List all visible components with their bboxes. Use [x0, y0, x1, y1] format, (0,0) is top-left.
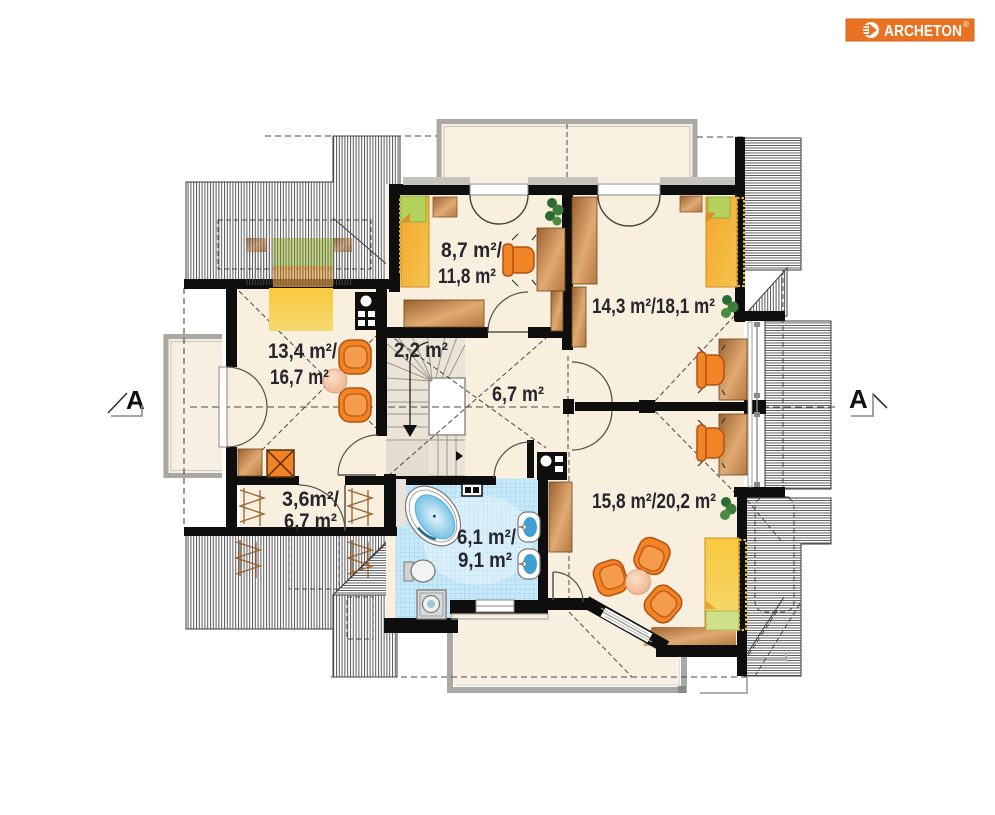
svg-text:9,1 m²: 9,1 m² [458, 549, 512, 572]
svg-text:ARCHETON: ARCHETON [884, 23, 962, 40]
svg-text:6,7 m²: 6,7 m² [284, 510, 337, 533]
svg-text:14,3 m²/18,1 m²: 14,3 m²/18,1 m² [592, 295, 715, 318]
svg-text:®: ® [963, 20, 969, 29]
svg-text:15,8 m²/20,2 m²: 15,8 m²/20,2 m² [592, 490, 716, 513]
svg-text:11,8 m²: 11,8 m² [438, 265, 496, 288]
svg-text:13,4 m²/: 13,4 m²/ [268, 340, 337, 363]
svg-text:A: A [849, 384, 868, 414]
svg-text:6,7 m²: 6,7 m² [492, 383, 544, 406]
svg-text:16,7 m²: 16,7 m² [270, 366, 329, 389]
svg-text:3,6m²/: 3,6m²/ [282, 488, 339, 511]
svg-text:8,7 m²/: 8,7 m²/ [441, 239, 502, 262]
svg-text:2,2 m²: 2,2 m² [394, 339, 448, 362]
svg-text:6,1 m²/: 6,1 m²/ [457, 526, 516, 549]
